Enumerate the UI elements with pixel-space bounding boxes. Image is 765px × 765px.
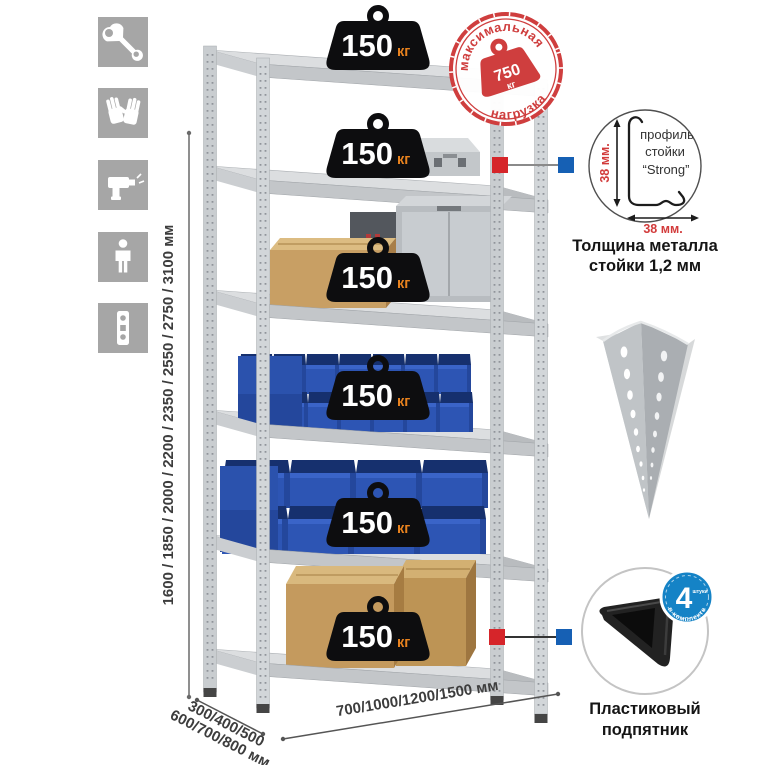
profile-dim-h-label: 38 мм. <box>643 222 682 236</box>
height-dimension-label: 1600 / 1850 / 2000 / 2200 / 2350 / 2550 … <box>160 225 177 606</box>
profile-dim-v-label: 38 мм. <box>598 143 612 182</box>
qty-badge-small-text: штуки <box>692 589 707 595</box>
sidebar-tile-wrench <box>98 17 148 67</box>
weight-shelf-2 <box>326 116 429 178</box>
qty-badge-number: 4 <box>676 582 693 615</box>
callout-blue-square-top <box>558 157 574 173</box>
profile-detail: 38 мм. 38 мм. профиль стойки “Strong” То… <box>572 110 718 275</box>
profile-caption-2: стойки 1,2 мм <box>589 257 701 275</box>
profile-label-2: стойки <box>645 144 685 159</box>
weight-shelf-1 <box>326 8 429 70</box>
profile-caption-1: Толщина металла <box>572 237 718 255</box>
perforated-profile-icon <box>117 311 129 345</box>
foot-caption-2: подпятник <box>602 721 689 739</box>
max-load-stamp: максимальная нагрузка 750 кг <box>437 0 576 138</box>
infographic-canvas: 150 кг <box>0 0 765 765</box>
callout-red-square-bottom <box>489 629 505 645</box>
product-infographic: 150 кг <box>0 0 765 765</box>
profile-label-1: профиль <box>640 127 694 142</box>
profile-label-3: “Strong” <box>643 162 690 177</box>
qty-badge: 4 штуки в комплекте <box>661 571 713 623</box>
foot-callout <box>489 629 572 645</box>
angle-profile-image <box>596 322 695 519</box>
sidebar <box>98 17 148 353</box>
callout-red-square-top <box>492 157 508 173</box>
sidebar-tile-gloves <box>98 88 148 138</box>
profile-dim-horizontal: 38 мм. <box>627 215 699 237</box>
height-dimension: 1600 / 1850 / 2000 / 2200 / 2350 / 2550 … <box>160 131 191 699</box>
profile-callout <box>492 157 574 173</box>
sidebar-tile-person <box>98 232 148 282</box>
foot-detail: 4 штуки в комплекте Пластиковый подпятни… <box>582 568 713 739</box>
foot-caption-1: Пластиковый <box>589 700 700 718</box>
sidebar-tile-drill <box>98 160 148 210</box>
callout-blue-square-bottom <box>556 629 572 645</box>
sidebar-tile-profile <box>98 303 148 353</box>
